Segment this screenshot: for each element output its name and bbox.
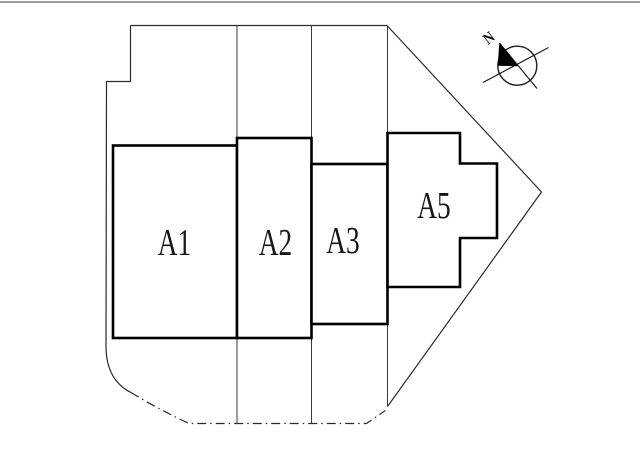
building-blocks: A1 A2 A3 A5 [113,133,497,338]
north-compass: N [480,29,548,89]
site-plan-canvas: A1 A2 A3 A5 N [0,0,640,454]
compass-north-label: N [480,29,499,49]
block-a3-label: A3 [326,220,359,262]
block-a2-label: A2 [259,222,292,264]
block-a5-label: A5 [417,185,450,227]
site-plan-drawing: A1 A2 A3 A5 N [0,0,640,454]
block-a1-label: A1 [158,222,191,264]
site-boundary-dashdot-bottom [131,393,386,424]
